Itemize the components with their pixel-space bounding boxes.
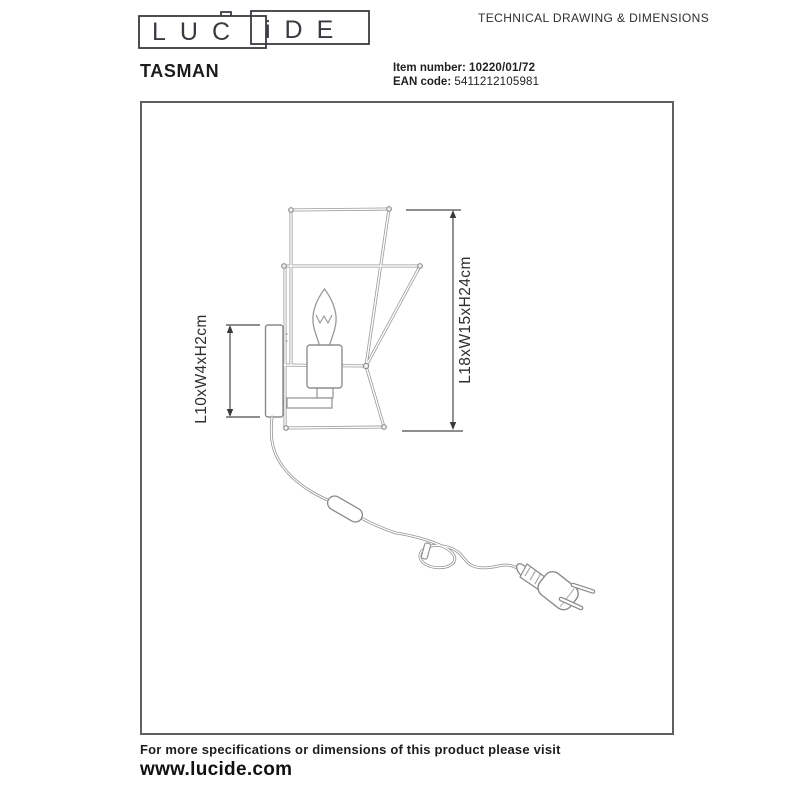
item-number-label: Item number: xyxy=(393,62,466,74)
footer: For more specifications or dimensions of… xyxy=(140,742,561,781)
ean-label: EAN code: xyxy=(393,76,451,88)
cord-switch xyxy=(325,493,365,524)
page-tagline: TECHNICAL DRAWING & DIMENSIONS xyxy=(478,11,709,25)
arrow-down xyxy=(450,422,456,430)
logo-text-left: LUC xyxy=(152,18,244,46)
product-name: TASMAN xyxy=(140,61,219,82)
plate-screw-dot xyxy=(286,333,288,335)
frame-joints xyxy=(282,207,423,431)
footer-website-link[interactable]: www.lucide.com xyxy=(140,759,561,781)
arrow-down xyxy=(227,409,233,417)
bulb xyxy=(313,289,336,346)
lucide-logo: LUC iDE xyxy=(137,8,373,54)
technical-drawing: L10xW4xH2cm L18xW15xH24cm xyxy=(140,101,674,735)
arrow-up xyxy=(227,325,233,333)
plate-screw-dot xyxy=(286,340,288,342)
dimension-overall-label: L18xW15xH24cm xyxy=(457,256,474,384)
lamp-frame xyxy=(282,207,423,431)
power-plug xyxy=(514,562,593,614)
page: LUC iDE TECHNICAL DRAWING & DIMENSIONS T… xyxy=(0,0,800,800)
dimension-bracket: L10xW4xH2cm xyxy=(193,314,260,424)
ean-row: EAN code: 5411212105981 xyxy=(393,75,539,89)
dimension-overall: L18xW15xH24cm xyxy=(402,210,474,431)
dimension-bracket-label: L10xW4xH2cm xyxy=(193,314,210,424)
cord-tie xyxy=(421,542,431,559)
ean-value: 5411212105981 xyxy=(454,76,539,88)
footer-text: For more specifications or dimensions of… xyxy=(140,742,561,757)
mounting-bracket xyxy=(287,388,333,408)
item-number-row: Item number: 10220/01/72 xyxy=(393,61,539,75)
power-cord xyxy=(271,417,519,569)
item-number-value: 10220/01/72 xyxy=(469,62,535,74)
logo-text-right: iDE xyxy=(265,16,347,44)
bulb-socket xyxy=(307,345,342,388)
arrow-up xyxy=(450,210,456,218)
product-codes: Item number: 10220/01/72 EAN code: 54112… xyxy=(393,61,539,89)
